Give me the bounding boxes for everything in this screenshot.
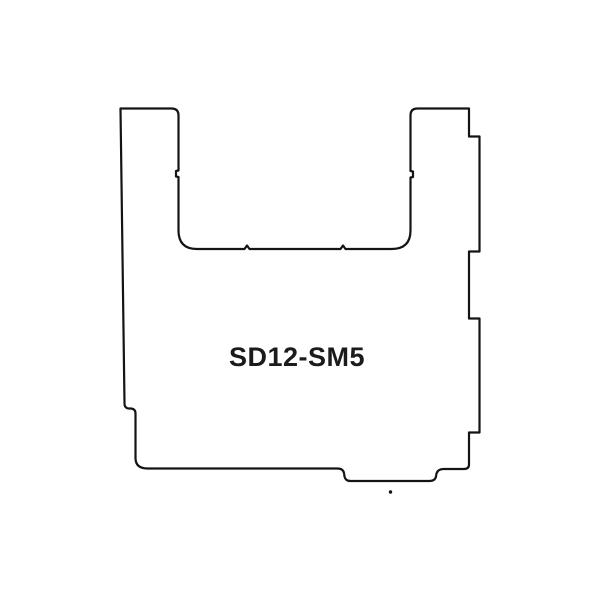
mat-template-drawing: SD12-SM5 [0,0,600,600]
product-image: SD12-SM5 [0,0,600,600]
mat-outline [121,109,480,482]
registration-dot [389,490,392,493]
part-number-label: SD12-SM5 [229,342,365,372]
